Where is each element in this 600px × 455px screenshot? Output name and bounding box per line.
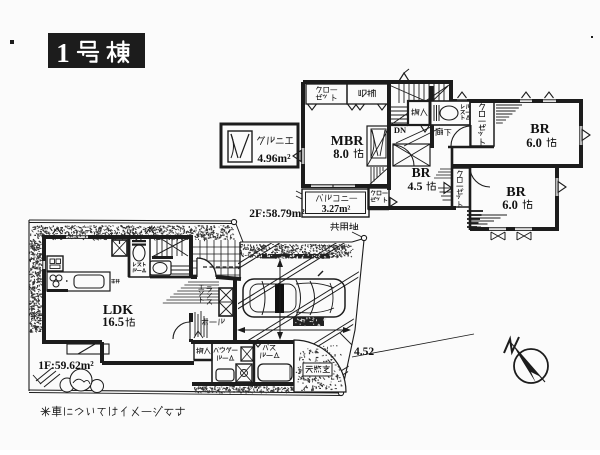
svg-text:6.0: 6.0	[502, 198, 518, 212]
svg-text:16.5: 16.5	[102, 315, 124, 329]
svg-text:3.27m²: 3.27m²	[322, 204, 351, 215]
svg-text:4.96m²: 4.96m²	[257, 153, 291, 165]
svg-text:DN: DN	[394, 125, 407, 135]
svg-text:6.0: 6.0	[526, 136, 542, 150]
svg-text:2F:58.79m²: 2F:58.79m²	[249, 208, 305, 220]
svg-text:BR: BR	[412, 165, 431, 180]
svg-text:4.5: 4.5	[408, 179, 423, 193]
svg-text:BR: BR	[530, 122, 550, 137]
svg-text:8.0: 8.0	[333, 147, 349, 161]
svg-text:1: 1	[56, 38, 70, 68]
svg-text:4.52: 4.52	[354, 346, 374, 358]
